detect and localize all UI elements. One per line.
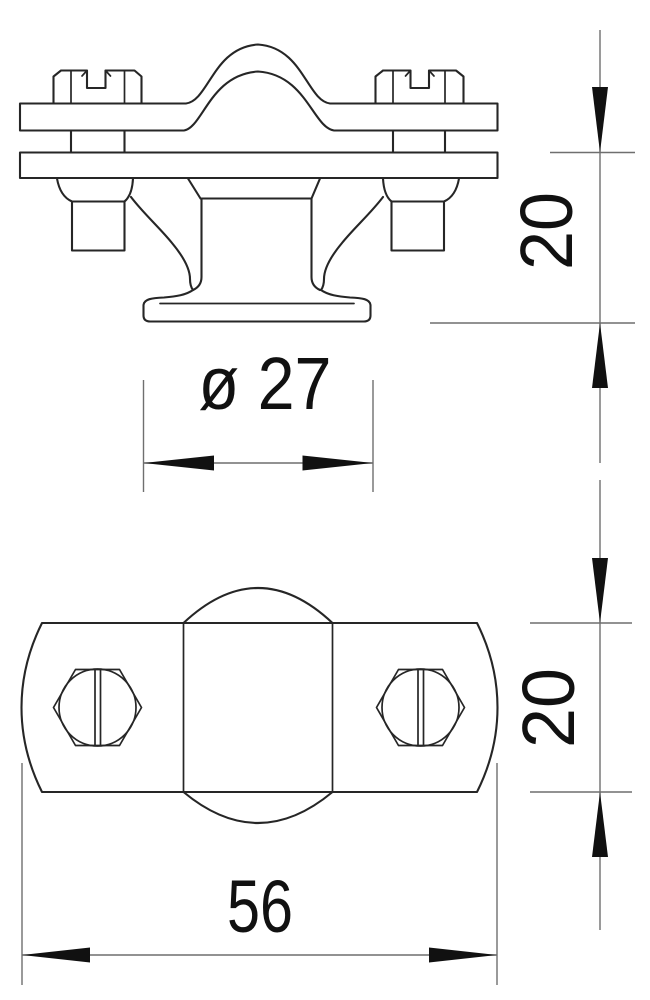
left-screw-shank	[71, 131, 125, 153]
left-hex-screw-top	[54, 669, 142, 746]
width-arrow-right	[429, 948, 497, 963]
left-hexagon	[54, 670, 142, 746]
side-view	[20, 45, 498, 322]
left-screw-head-lines	[71, 71, 125, 104]
pedestal-collar	[188, 179, 320, 199]
left-screw	[54, 71, 142, 251]
lower-height-arrow-top	[592, 558, 608, 623]
width-arrow-left	[22, 948, 90, 963]
width-label: 56	[227, 865, 293, 948]
lower-height-label: 20	[507, 668, 590, 748]
technical-drawing: ø 27 20 20 56	[0, 0, 650, 1000]
right-screw-circle	[382, 669, 459, 746]
dimension-width: 56	[22, 763, 497, 985]
upper-height-arrow-bottom	[592, 323, 608, 388]
lower-height-arrow-bottom	[592, 792, 608, 857]
right-screw-slot	[418, 670, 424, 746]
dimension-lower-height: 20	[507, 558, 632, 857]
left-screw-circle	[59, 669, 136, 746]
pedestal-column	[193, 199, 320, 291]
right-hex-screw-top	[377, 669, 465, 746]
upper-height-arrow-top	[592, 87, 608, 153]
diameter-arrow-left	[144, 456, 215, 471]
upper-height-label: 20	[505, 192, 588, 270]
right-screw-head-lines	[393, 71, 445, 104]
saddle-edge-lines	[184, 623, 333, 792]
dimension-diameter: ø 27	[144, 342, 374, 492]
dimension-upper-height: 20	[430, 30, 635, 930]
top-view	[22, 588, 498, 823]
left-nut	[57, 179, 133, 251]
right-screw-head	[376, 71, 464, 104]
diameter-label: ø 27	[199, 342, 332, 425]
left-screw-slot	[95, 670, 101, 746]
left-screw-head	[54, 71, 142, 104]
drawing-canvas: ø 27 20 20 56	[0, 0, 650, 1000]
base-plate	[20, 153, 498, 179]
right-hexagon	[377, 670, 465, 746]
pedestal-base	[131, 179, 383, 322]
right-screw	[376, 71, 464, 251]
right-nut	[383, 179, 459, 251]
diameter-arrow-right	[303, 456, 374, 471]
right-screw-shank	[393, 131, 445, 153]
plate-outline	[22, 623, 498, 792]
